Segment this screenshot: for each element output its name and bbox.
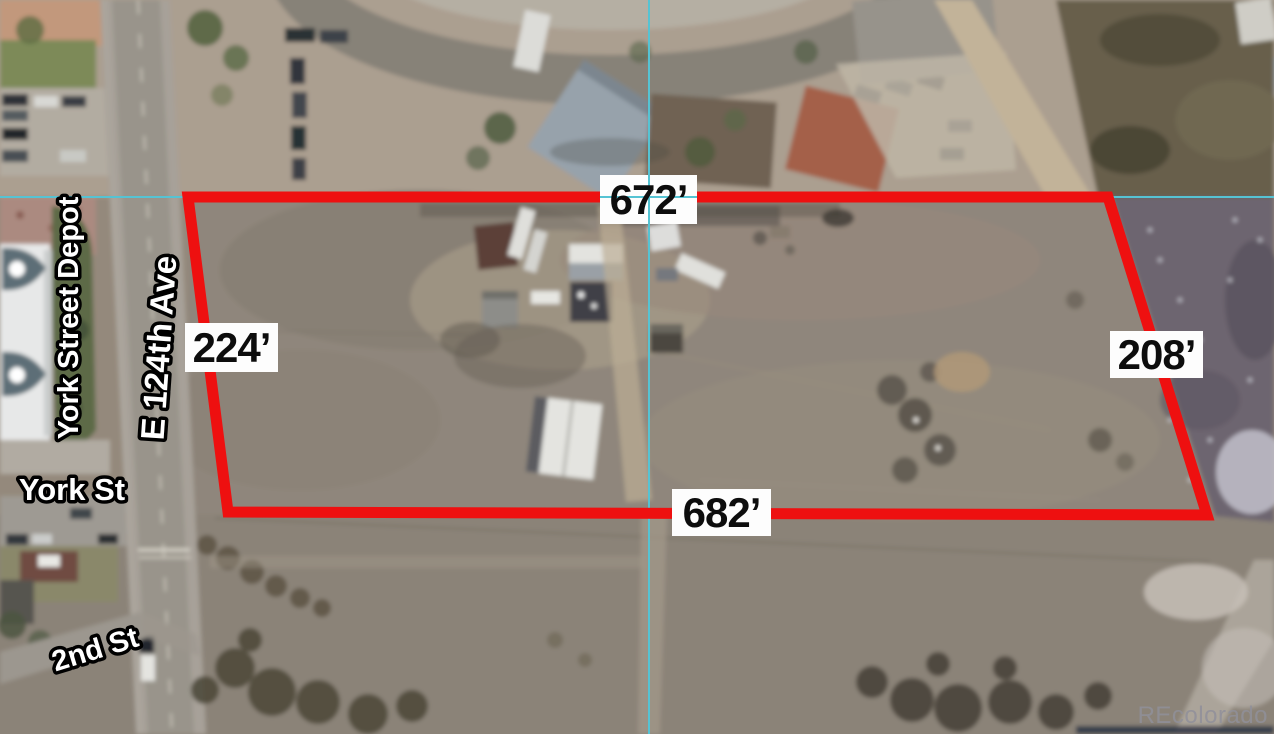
parcel-outline (188, 197, 1207, 515)
street-label-york-street-depot: York Street Depot (53, 196, 85, 439)
dimension-label-bottom: 682’ (672, 489, 771, 536)
dimension-value-right: 208’ (1118, 331, 1196, 379)
recolorado-watermark: REcolorado (1138, 702, 1268, 730)
dimension-label-top: 672’ (600, 175, 697, 224)
dimension-label-right: 208’ (1110, 331, 1203, 378)
dimension-label-left: 224’ (185, 323, 278, 372)
street-label-e-124th-ave: E 124th Ave (134, 255, 184, 442)
aerial-map: York Street Depot E 124th Ave York St 2n… (0, 0, 1274, 734)
dimension-value-left: 224’ (193, 324, 271, 372)
street-label-york-st: York St (19, 472, 125, 507)
street-label-2nd-st: 2nd St (48, 622, 142, 679)
dimension-value-bottom: 682’ (683, 489, 761, 537)
dimension-value-top: 672’ (610, 176, 688, 224)
